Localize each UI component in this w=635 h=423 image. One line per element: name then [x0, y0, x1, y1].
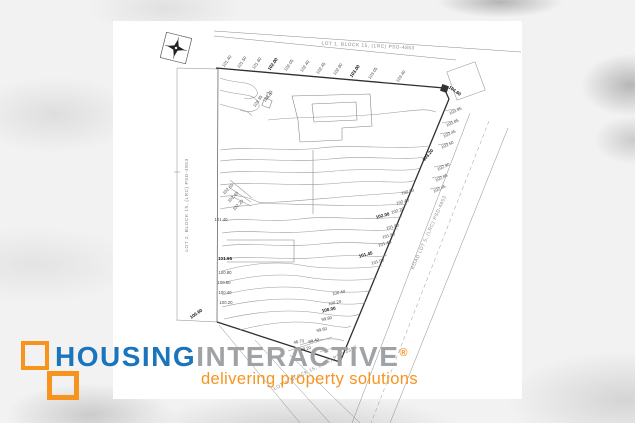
elevation-label: 102.05	[283, 58, 295, 72]
listing-image-canvas: 101.40101.50101.80102.00102.05102.40102.…	[0, 0, 635, 423]
elevation-label: 100.60	[217, 280, 231, 285]
elevation-label: 102.90	[436, 161, 451, 171]
elevation-label: 101.40	[221, 54, 233, 68]
parcel-boundary	[216, 68, 449, 362]
elevation-label: 103.50	[440, 139, 455, 149]
logo-square-icon	[21, 341, 49, 370]
logo-tagline: delivering property solutions	[148, 370, 418, 389]
elevation-label: 102.20	[232, 198, 245, 211]
elevation-label: 103.40	[395, 69, 407, 83]
elevation-label: 100.60	[189, 307, 204, 319]
elevation-label: 103.45	[442, 128, 457, 138]
parcel-label: LOT 1, BLOCK 15, (LRC) PSD-4853	[321, 41, 414, 52]
compass-rose-icon	[160, 32, 192, 64]
elevation-label: 102.00	[267, 57, 279, 72]
elevation-label: 100.80	[218, 270, 232, 275]
elevation-label: 100.40	[218, 290, 232, 295]
elevation-label: 102.00	[375, 211, 390, 220]
elevation-label: 103.95	[448, 105, 463, 115]
logo-word-interactive: INTERACTIVE	[196, 341, 399, 372]
logo-square-icon	[47, 371, 79, 400]
elevation-label: 103.85	[445, 117, 460, 127]
elevation-label: 99.80	[321, 315, 333, 322]
parcel-label: ROAD LOT 5, (LRC) PSD-4853	[410, 195, 448, 271]
elevation-label: 101.00	[371, 257, 386, 265]
elevation-label: 100.20	[328, 299, 342, 307]
logo-wordmark: HOUSINGINTERACTIVE®	[55, 341, 407, 373]
left-adjacent-lot-lines	[174, 68, 218, 322]
elevation-label: 102.20	[391, 206, 406, 214]
elevation-label: 102.40	[299, 59, 311, 73]
logo-word-housing: HOUSING	[55, 341, 196, 372]
elevation-label: 101.40	[378, 239, 393, 247]
parcel-label: LOT 2, BLOCK 15, (LRC) PSD-4853	[184, 158, 190, 251]
elevation-label: 100.40	[332, 289, 346, 297]
elevation-label: 101.60	[382, 231, 397, 239]
elevation-label: 100.20	[219, 300, 233, 305]
elevation-label: 102.90	[332, 62, 344, 76]
registered-trademark-icon: ®	[399, 347, 407, 359]
elevation-label: 101.40	[214, 217, 228, 222]
northeast-corner-parcel	[447, 62, 485, 100]
elevation-label: 102.80	[401, 187, 416, 195]
elevation-label: 101.45	[358, 250, 373, 259]
elevation-label: 101.50	[236, 55, 248, 69]
elevation-label: 101.80	[251, 56, 263, 70]
elevation-label: 102.85	[434, 172, 449, 182]
elevation-label: 100.00	[321, 306, 336, 314]
elevation-label: 99.60	[316, 326, 328, 333]
elevation-label: 103.00	[349, 64, 361, 79]
elevation-label: 103.20	[421, 148, 434, 162]
elevation-label: 101.95	[218, 256, 232, 261]
elevation-label: 102.45	[315, 61, 327, 75]
elevation-label: 103.05	[367, 66, 379, 80]
